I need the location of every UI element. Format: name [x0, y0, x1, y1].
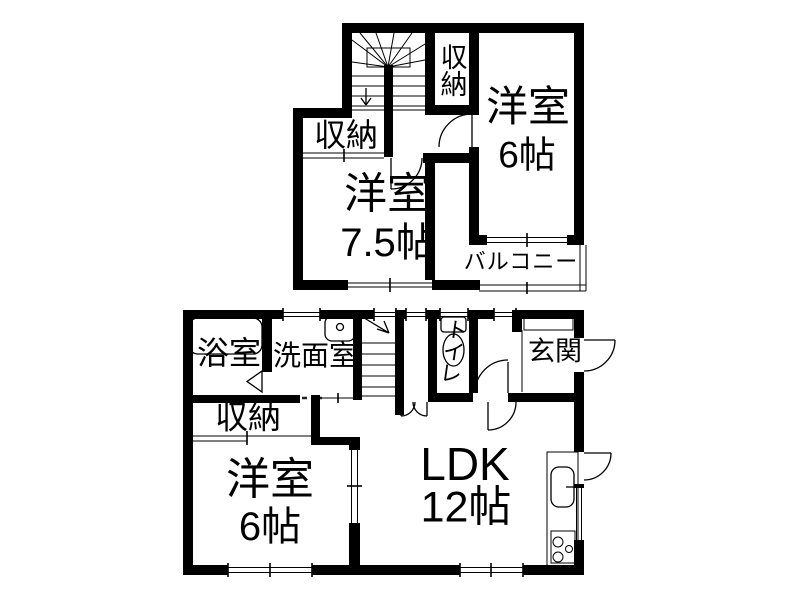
- label-1f-closet: 収納: [215, 401, 281, 434]
- bath-door-icon: [247, 371, 262, 392]
- entrance-door-arc: [584, 340, 615, 371]
- label-1f-bedroom6-name: 洋室: [226, 458, 314, 502]
- label-1f-ldk-name: LDK: [420, 441, 509, 487]
- label-1f-entrance: 玄関: [528, 339, 582, 366]
- label-2f-balcony: バルコニー: [464, 251, 579, 273]
- label-2f-bedroom75-name: 洋室: [344, 174, 430, 217]
- hall-door-arc: [475, 360, 508, 393]
- floor-plan: 収納 洋室 6帖 収納 洋室 7.5帖 バルコニー 浴室 洗面室 トイレ 玄関 …: [0, 0, 800, 600]
- label-2f-bedroom6-name: 洋室: [486, 86, 570, 128]
- label-1f-ldk-size: 12帖: [421, 487, 512, 530]
- bedroom6-ldk-sliding-door: [347, 450, 362, 523]
- label-2f-closet-upper: 収納: [438, 43, 465, 97]
- kitchen-door-arc: [584, 453, 611, 480]
- stove-icon: [551, 531, 575, 563]
- label-1f-washroom: 洗面室: [273, 342, 357, 370]
- kitchen-counter: [547, 452, 578, 567]
- sink-icon: [325, 316, 355, 341]
- label-2f-bedroom75-size: 7.5帖: [340, 223, 436, 263]
- hall-closet-double-doors: [401, 402, 427, 416]
- balcony-window: [487, 233, 567, 247]
- bedroom75-window: [348, 278, 432, 292]
- washroom-opening: [322, 393, 353, 403]
- label-1f-bathroom: 浴室: [197, 337, 261, 369]
- label-2f-bedroom6-size: 6帖: [498, 137, 556, 174]
- label-1f-bedroom6-size: 6帖: [239, 507, 301, 547]
- bedroom6-door-arc: [439, 114, 472, 147]
- kitchen-window: [577, 488, 582, 540]
- floor-plan-drawing: [0, 0, 800, 600]
- label-2f-closet-left: 収納: [314, 119, 378, 151]
- ldk-door-arc: [488, 402, 516, 430]
